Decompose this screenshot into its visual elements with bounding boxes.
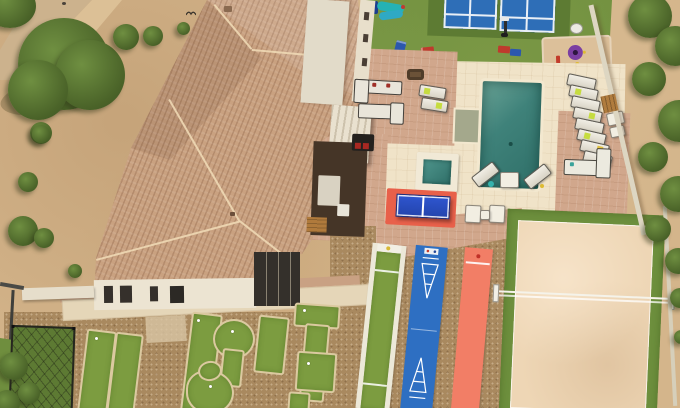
- putting-green: [295, 351, 338, 394]
- side-table: [480, 210, 490, 220]
- hot-tub: [415, 152, 459, 192]
- shrub: [113, 24, 139, 50]
- wood-door-panel: [306, 217, 327, 233]
- pool-baja-shelf: [454, 110, 483, 143]
- window: [150, 286, 158, 301]
- shrub: [177, 22, 190, 35]
- window: [104, 286, 113, 303]
- ping-pong-table: [395, 194, 450, 220]
- pillow: [372, 83, 376, 87]
- shrub: [34, 228, 54, 248]
- basketball-hoop-base: [501, 33, 508, 37]
- side-yard-wall: [22, 286, 94, 301]
- sectional-chaise: [390, 102, 405, 124]
- tree: [8, 216, 38, 246]
- daybed: [500, 172, 519, 188]
- roof-vent: [230, 212, 235, 216]
- pool-toy: [540, 184, 544, 188]
- towel: [424, 88, 431, 95]
- pickleball-court: [443, 0, 497, 30]
- shrub: [18, 172, 38, 192]
- toy: [583, 51, 586, 54]
- golf-ball: [95, 337, 98, 340]
- bbq-grill: [352, 134, 375, 152]
- golf-ball: [303, 309, 306, 312]
- pool-drain: [509, 142, 513, 146]
- net-post: [493, 284, 500, 302]
- aerial-photo: [0, 0, 680, 408]
- chimney: [224, 6, 232, 12]
- window-mullion: [278, 252, 279, 306]
- wood-gate: [600, 94, 618, 114]
- armchair: [465, 205, 482, 224]
- golf-ball: [231, 330, 234, 333]
- score-marker: [476, 254, 480, 258]
- armchair: [489, 205, 506, 224]
- court-line: [466, 261, 490, 265]
- window: [120, 286, 132, 303]
- towel: [584, 132, 591, 139]
- window: [363, 34, 369, 42]
- playset-detail: [401, 5, 405, 9]
- towel: [588, 112, 595, 119]
- tree: [638, 142, 668, 172]
- patio-door: [170, 286, 184, 303]
- covered-patio-shadow: [310, 141, 367, 237]
- hot-tub-water: [422, 159, 451, 184]
- sectional-chaise: [595, 148, 611, 179]
- pillow: [570, 162, 574, 166]
- volleyball-court: [498, 209, 665, 408]
- flat-roof-section: [300, 0, 349, 105]
- golf-ball: [197, 319, 200, 322]
- grill-accent: [355, 143, 361, 149]
- outdoor-sectional: [563, 145, 622, 179]
- putting-green: [287, 391, 310, 408]
- shrub: [32, 125, 50, 143]
- tree: [8, 60, 68, 120]
- glass-wall-section: [254, 252, 300, 306]
- outdoor-sectional: [353, 77, 400, 103]
- putting-green: [253, 315, 290, 376]
- cage-post: [11, 325, 14, 328]
- grill-accent: [363, 143, 369, 149]
- shrub: [143, 26, 163, 46]
- towel: [436, 102, 443, 109]
- tree: [632, 62, 666, 96]
- outdoor-fridge: [337, 204, 349, 216]
- bird-icon: [186, 10, 196, 17]
- tree: [0, 352, 28, 380]
- golf-ball: [209, 385, 212, 388]
- golf-ball: [307, 362, 310, 365]
- outdoor-counter: [317, 175, 340, 206]
- cage-post: [72, 327, 75, 330]
- volleyball-sand: [510, 220, 654, 408]
- sectional-chaise: [353, 79, 369, 104]
- window-mullion: [290, 252, 291, 306]
- cornhole-board: [510, 49, 521, 57]
- cornhole-board: [498, 46, 510, 54]
- window: [362, 58, 368, 66]
- pillow: [386, 83, 390, 87]
- outdoor-sectional: [358, 101, 403, 125]
- umbrella-toy: [568, 45, 584, 61]
- fire-pit: [407, 69, 424, 80]
- shrub: [68, 264, 82, 278]
- window-mullion: [266, 252, 267, 306]
- pool-float: [488, 181, 494, 187]
- tree: [645, 216, 671, 242]
- towel: [575, 88, 582, 95]
- window: [364, 12, 370, 20]
- tree: [18, 382, 40, 404]
- bird-icon: [62, 2, 66, 5]
- walkway-patch: [145, 315, 186, 343]
- house-south-wall: [94, 278, 256, 310]
- patio-table: [570, 23, 583, 34]
- table-centerline: [421, 196, 424, 217]
